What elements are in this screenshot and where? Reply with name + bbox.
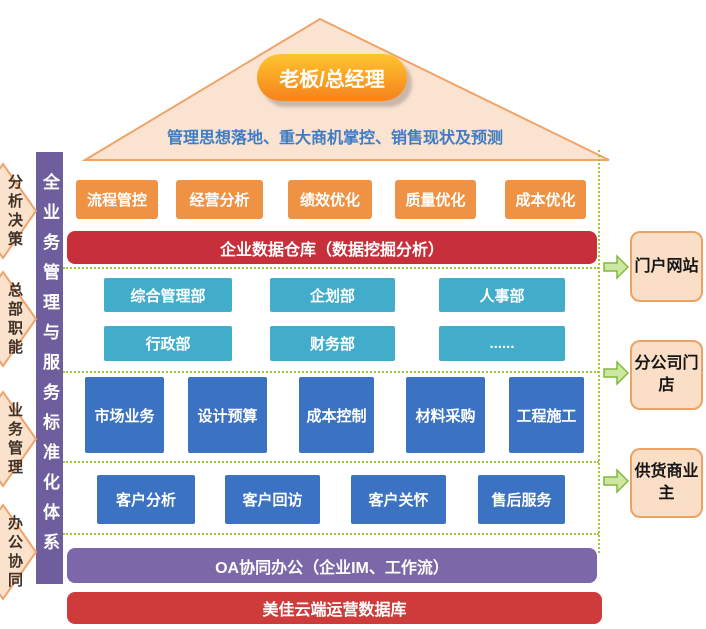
department-box: ...... <box>439 326 565 361</box>
business-box: 工程施工 <box>509 377 584 453</box>
left-rail-title: 全业务管理与服务标准化体系 <box>37 173 62 563</box>
side-arrow-label: 业务管理 <box>7 401 24 477</box>
right-arrow-icon <box>603 360 629 386</box>
roof-subtitle: 管理思想落地、重大商机掌控、销售现状及预测 <box>120 124 550 148</box>
right-arrow-icon <box>603 468 629 494</box>
customer-box: 客户关怀 <box>351 475 446 524</box>
cloud-db-bar: 美佳云端运营数据库 <box>67 592 602 624</box>
left-rail: 全业务管理与服务标准化体系 <box>36 152 63 584</box>
department-box: 行政部 <box>104 326 232 361</box>
business-box: 材料采购 <box>406 377 485 453</box>
diagram-canvas: 老板/总经理 管理思想落地、重大商机掌控、销售现状及预测 全业务管理与服务标准化… <box>0 0 706 629</box>
customer-box: 客户回访 <box>225 475 320 524</box>
channel-box: 分公司门店 <box>630 340 703 410</box>
customer-box: 售后服务 <box>478 475 565 524</box>
dotted-divider <box>63 371 599 373</box>
leader-badge: 老板/总经理 <box>257 54 407 101</box>
management-box: 质量优化 <box>395 180 476 219</box>
business-box: 市场业务 <box>85 377 164 453</box>
channel-box: 供货商业主 <box>630 448 703 518</box>
right-arrow-icon <box>603 254 629 280</box>
management-box: 成本优化 <box>505 180 586 219</box>
channel-box: 门户网站 <box>630 231 703 302</box>
management-box: 经营分析 <box>176 180 263 219</box>
leader-badge-label: 老板/总经理 <box>279 63 385 92</box>
side-arrow-label: 办公协同 <box>7 514 24 590</box>
management-box: 流程管控 <box>76 180 158 219</box>
customer-box: 客户分析 <box>97 475 195 524</box>
dotted-divider <box>63 533 599 535</box>
dotted-divider <box>63 461 599 463</box>
management-box: 绩效优化 <box>288 180 372 219</box>
data-warehouse-bar: 企业数据仓库（数据挖掘分析） <box>67 231 597 264</box>
business-box: 成本控制 <box>299 377 374 453</box>
dotted-divider <box>63 267 599 269</box>
dotted-boundary <box>598 150 600 553</box>
department-box: 综合管理部 <box>104 278 232 312</box>
oa-bar: OA协同办公（企业IM、工作流） <box>67 548 597 583</box>
side-arrow-label: 总部职能 <box>7 281 24 357</box>
side-arrow-label: 分析决策 <box>7 173 24 249</box>
business-box: 设计预算 <box>188 377 267 453</box>
department-box: 财务部 <box>270 326 395 361</box>
department-box: 人事部 <box>439 278 565 312</box>
department-box: 企划部 <box>270 278 395 312</box>
